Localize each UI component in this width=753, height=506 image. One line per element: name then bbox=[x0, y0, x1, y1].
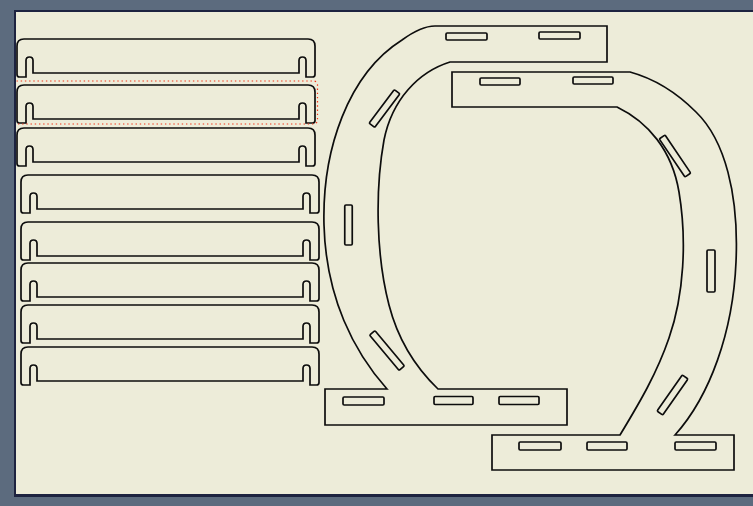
cad-canvas[interactable] bbox=[16, 12, 753, 494]
slat-8[interactable] bbox=[21, 347, 319, 385]
drawing-page[interactable] bbox=[14, 10, 753, 497]
c-bracket-right-slot-2 bbox=[573, 77, 613, 84]
c-bracket-right-slot-7 bbox=[587, 442, 627, 450]
slat-3[interactable] bbox=[17, 128, 315, 166]
c-bracket-left-slot-2 bbox=[539, 32, 580, 39]
slat-1[interactable] bbox=[17, 39, 315, 77]
c-bracket-left-slot-7 bbox=[434, 397, 473, 405]
c-bracket-right-slot-3 bbox=[659, 135, 691, 177]
c-bracket-left-slot-5 bbox=[370, 331, 405, 371]
slat-2[interactable] bbox=[17, 85, 315, 123]
c-bracket-left-outline bbox=[324, 26, 607, 425]
c-bracket-right-slot-4 bbox=[707, 250, 715, 292]
c-bracket-right-outline bbox=[452, 72, 736, 470]
slat-6[interactable] bbox=[21, 263, 319, 301]
c-bracket-left-slot-6 bbox=[343, 397, 384, 405]
workspace-background bbox=[0, 0, 753, 506]
c-bracket-right-slot-6 bbox=[519, 442, 561, 450]
slat-7[interactable] bbox=[21, 305, 319, 343]
c-bracket-right-slot-5 bbox=[657, 375, 688, 415]
c-bracket-left-slot-1 bbox=[446, 33, 487, 40]
c-bracket-right-slot-1 bbox=[480, 78, 520, 85]
c-bracket-right[interactable] bbox=[452, 72, 736, 470]
c-bracket-right-slot-8 bbox=[675, 442, 716, 450]
slat-4[interactable] bbox=[21, 175, 319, 213]
c-bracket-left[interactable] bbox=[324, 26, 607, 425]
c-bracket-left-slot-4 bbox=[345, 205, 353, 245]
selection-marquee bbox=[16, 81, 318, 124]
slat-5[interactable] bbox=[21, 222, 319, 260]
c-bracket-left-slot-8 bbox=[499, 397, 539, 405]
